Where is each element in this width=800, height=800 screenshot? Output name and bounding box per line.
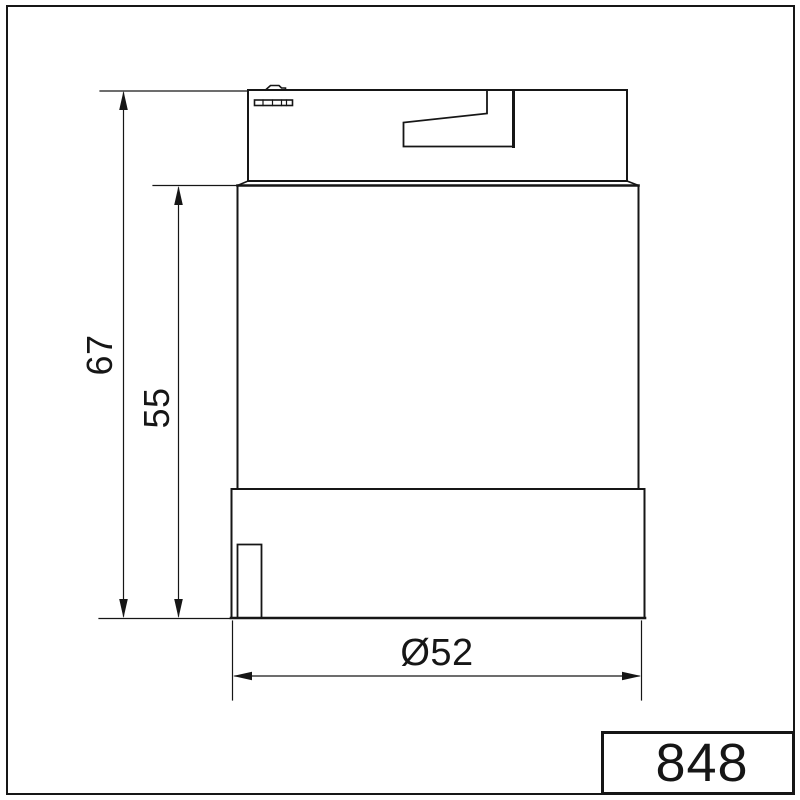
- cap-outline: [248, 86, 627, 182]
- part-number-box: 848: [601, 731, 795, 795]
- arrowhead-up-67: [119, 91, 128, 110]
- cap-vent-slots: [255, 100, 293, 106]
- dimension-label-overall-height: 67: [80, 310, 120, 400]
- bayonet-slot: [404, 90, 514, 147]
- base-clip-detail: [238, 545, 262, 618]
- flange-outline: [238, 181, 639, 186]
- technical-drawing-svg: [0, 0, 800, 800]
- arrowhead-left-dia: [233, 672, 252, 681]
- dimension-67: [100, 91, 248, 618]
- drawing-canvas: 67 55 Ø52 848: [0, 0, 800, 800]
- arrowhead-down-67: [119, 599, 128, 618]
- lens-outline: [238, 186, 639, 490]
- arrowhead-down-55: [174, 599, 183, 618]
- part-number-label: 848: [647, 736, 748, 790]
- arrowhead-right-dia: [622, 672, 641, 681]
- arrowhead-up-55: [174, 186, 183, 205]
- base-outline: [231, 489, 645, 618]
- dimension-label-diameter: Ø52: [357, 633, 517, 673]
- dimension-label-lens-height: 55: [137, 363, 177, 453]
